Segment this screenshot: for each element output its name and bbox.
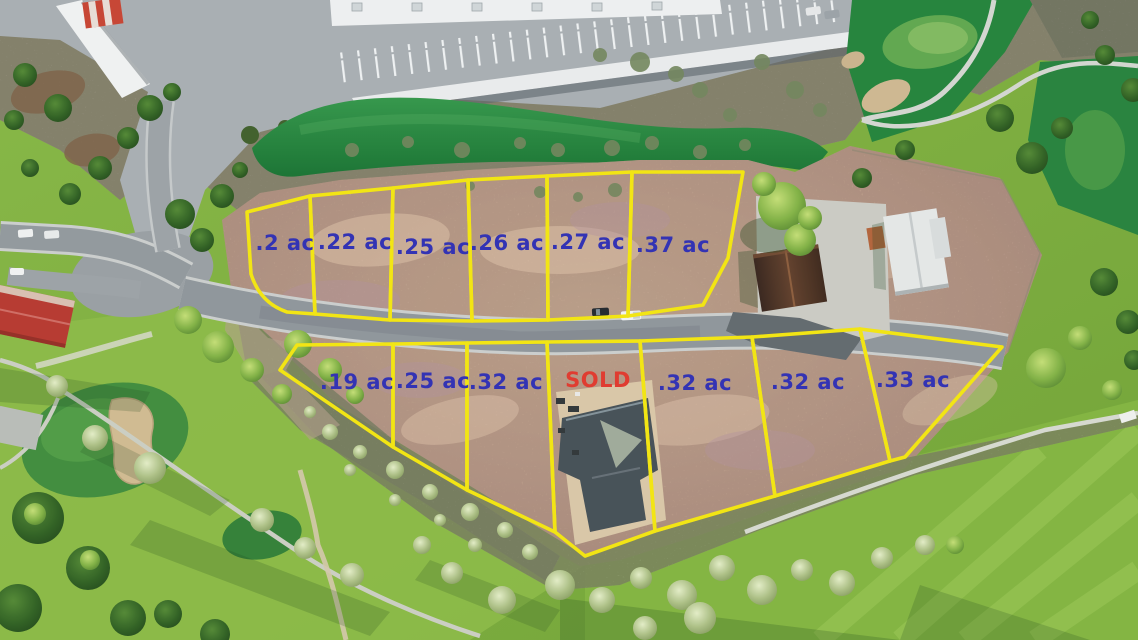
aerial-photo: .2 ac .22 ac .25 ac .26 ac .27 ac .37 ac… (0, 0, 1138, 640)
photo-haze-overlay (0, 0, 1138, 640)
aerial-lot-map: .2 ac .22 ac .25 ac .26 ac .27 ac .37 ac… (0, 0, 1138, 640)
